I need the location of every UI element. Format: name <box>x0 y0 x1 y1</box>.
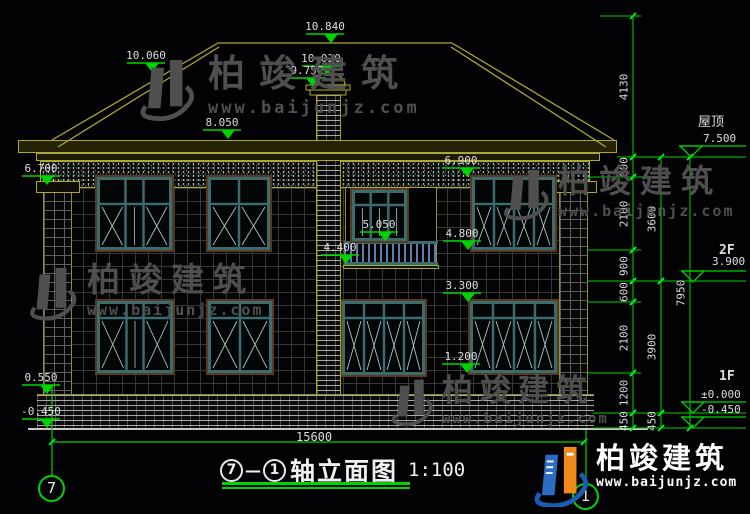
window <box>350 188 409 243</box>
watermark-url: www.baijunjz.com <box>208 98 420 118</box>
title-axis-end: 1 <box>263 459 286 482</box>
watermark-brand: 柏竣建筑 <box>87 263 264 298</box>
elevation-marker <box>324 34 338 43</box>
brand-name: 柏竣建筑 <box>596 443 737 475</box>
roof-fascia-lower <box>36 153 600 161</box>
balcony-railing <box>344 241 438 265</box>
dim-tick <box>630 299 636 305</box>
dim-tick <box>658 278 664 284</box>
axis-bubble-7: 7 <box>38 475 65 502</box>
elevation-marker <box>221 130 235 139</box>
dim-tick <box>658 278 664 284</box>
dim-tick <box>630 370 636 376</box>
cad-elevation-drawing: 4130600210090060021001200450360039004507… <box>0 0 750 514</box>
side-label: -0.450 <box>701 404 741 415</box>
pilaster-right <box>559 192 588 394</box>
dim-tick <box>630 278 636 284</box>
dim-tick <box>658 410 664 416</box>
side-label: 1F <box>719 370 735 383</box>
watermark-right: 柏竣建筑 www.baijunjz.com <box>502 165 735 221</box>
dim-value: 450 <box>647 411 658 431</box>
dim-tick <box>630 247 636 253</box>
watermark-top: 柏竣建筑 www.baijunjz.com <box>138 55 420 121</box>
brand-logo: 柏竣建筑 www.baijunjz.com <box>532 443 737 507</box>
title-underline-thin <box>222 487 410 489</box>
elevation-marker-open <box>682 271 704 282</box>
ground-line <box>28 428 648 430</box>
title-separator: — <box>245 461 261 480</box>
watermark-url: www.baijunjz.com <box>442 411 609 427</box>
window-glazing <box>342 301 425 375</box>
dim-value: 1200 <box>619 380 630 407</box>
brand-logo-icon <box>532 443 590 507</box>
dim-tick <box>658 154 664 160</box>
side-label: ±0.000 <box>701 389 741 400</box>
dim-value: 2100 <box>619 324 630 351</box>
watermark-left: 柏竣建筑 www.baijunjz.com <box>28 263 264 321</box>
side-label: 7.500 <box>703 133 736 144</box>
roof-line <box>451 47 606 147</box>
window-glazing <box>470 301 557 373</box>
dim-tick <box>630 299 636 305</box>
dim-tick <box>630 247 636 253</box>
elevation-marker-open <box>682 402 704 413</box>
dim-tick <box>630 154 636 160</box>
balcony-slab <box>343 265 439 269</box>
pilaster-capital-left <box>36 181 80 193</box>
title-axis-start: 7 <box>220 459 243 482</box>
dim-value: 600 <box>619 282 630 302</box>
overall-dim-value: 15600 <box>296 431 332 443</box>
window <box>206 175 272 252</box>
dim-value: 4130 <box>619 73 630 100</box>
dim-tick <box>630 154 636 160</box>
window-glazing <box>208 177 270 250</box>
watermark-url: www.baijunjz.com <box>87 301 264 319</box>
watermark-logo-icon <box>390 375 434 427</box>
watermark-logo-icon <box>138 55 196 121</box>
dim-value: 900 <box>619 256 630 276</box>
roof-line <box>452 43 614 140</box>
watermark-brand: 柏竣建筑 <box>442 375 609 408</box>
side-label: 屋顶 <box>698 116 724 129</box>
watermark-logo-icon <box>28 263 78 321</box>
title-scale: 1:100 <box>408 459 465 481</box>
window <box>468 299 559 375</box>
brand-url: www.baijunjz.com <box>596 475 737 490</box>
dim-tick <box>630 410 636 416</box>
dim-tick <box>658 410 664 416</box>
window-glazing <box>97 177 172 250</box>
watermark-logo-icon <box>502 165 550 221</box>
watermark-brand: 柏竣建筑 <box>558 165 735 199</box>
roof-fascia <box>18 140 617 153</box>
elevation-marker-open <box>682 417 704 428</box>
window <box>340 299 427 377</box>
side-label: 3.900 <box>712 256 745 267</box>
elevation-marker-open <box>680 146 702 157</box>
dim-tick <box>658 425 664 431</box>
side-label: 2F <box>719 244 735 257</box>
window <box>95 175 174 252</box>
dim-tick <box>630 370 636 376</box>
dim-tick <box>630 410 636 416</box>
elevation-value: 10.840 <box>299 21 351 32</box>
dim-tick <box>687 425 693 431</box>
dim-tick <box>49 439 55 445</box>
window-glazing <box>352 190 407 241</box>
watermark-brand: 柏竣建筑 <box>208 55 420 94</box>
dim-value: 3900 <box>647 334 658 361</box>
dim-value: 7950 <box>676 279 687 306</box>
watermark-bottom: 柏竣建筑 www.baijunjz.com <box>390 375 609 427</box>
dim-tick <box>630 278 636 284</box>
title-underline-thick <box>222 482 410 485</box>
dim-tick <box>687 154 693 160</box>
dim-tick <box>630 13 636 19</box>
watermark-url: www.baijunjz.com <box>558 202 735 220</box>
